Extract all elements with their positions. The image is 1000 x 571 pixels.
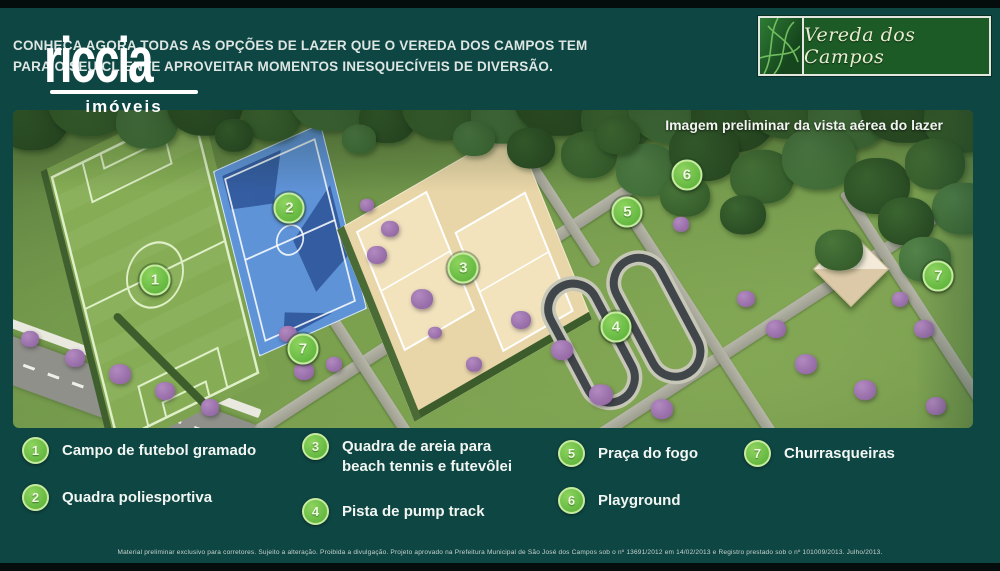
tree-canopy (932, 182, 973, 235)
aerial-view-image: Imagem preliminar da vista aérea do laze… (13, 110, 973, 428)
flowering-tree (589, 384, 613, 406)
tree-canopy (720, 195, 766, 234)
tree-canopy (342, 124, 376, 153)
brand-name: Vereda dos Campos (804, 18, 989, 74)
map-marker-3: 3 (448, 253, 479, 284)
legend-item: 7 Churrasqueiras (744, 440, 895, 467)
legend-column-2: 3 Quadra de areia para beach tennis e fu… (302, 433, 517, 525)
agency-logo-subtitle: imóveis (44, 97, 204, 117)
flowering-tree (673, 217, 689, 231)
legend-number-badge: 5 (558, 440, 585, 467)
agency-logo-wordmark: riccia (44, 34, 166, 86)
legend-item: 1 Campo de futebol gramado (22, 437, 256, 464)
tree-canopy (453, 121, 495, 157)
tree-canopy (815, 230, 863, 271)
legend-item: 6 Playground (558, 487, 698, 514)
flowering-tree (360, 199, 374, 212)
flowering-tree (914, 320, 934, 338)
legend-number-badge: 6 (558, 487, 585, 514)
development-brand-box: Vereda dos Campos (758, 16, 991, 76)
flowering-tree (367, 246, 387, 264)
legend-item: 3 Quadra de areia para beach tennis e fu… (302, 433, 517, 478)
legend-column-1: 1 Campo de futebol gramado 2 Quadra poli… (22, 437, 256, 511)
legend-item: 5 Praça do fogo (558, 440, 698, 467)
legal-disclaimer: Material preliminar exclusivo para corre… (0, 549, 1000, 556)
legend-item: 2 Quadra poliesportiva (22, 484, 256, 511)
flowering-tree (651, 399, 673, 419)
map-marker-5: 5 (612, 197, 643, 228)
legend-label: Quadra de areia para beach tennis e fute… (342, 433, 517, 478)
flowering-tree (551, 340, 573, 360)
flowering-tree (892, 292, 908, 306)
flowering-tree (466, 357, 482, 371)
legend-number-badge: 2 (22, 484, 49, 511)
map-marker-4: 4 (600, 311, 631, 342)
promo-page: CONHEÇA AGORA TODAS AS OPÇÕES DE LAZER Q… (0, 0, 1000, 571)
flowering-tree (201, 399, 219, 415)
map-marker-7: 7 (923, 260, 954, 291)
map-marker-2: 2 (274, 192, 305, 223)
flowering-tree (21, 331, 39, 347)
legend-number-badge: 1 (22, 437, 49, 464)
flowering-tree (795, 354, 817, 374)
flowering-tree (155, 382, 175, 400)
legend-number-badge: 3 (302, 433, 329, 460)
legend-number-badge: 4 (302, 498, 329, 525)
legend-label: Praça do fogo (598, 440, 698, 464)
flowering-tree (381, 221, 399, 237)
legend-label: Churrasqueiras (784, 440, 895, 464)
aerial-caption: Imagem preliminar da vista aérea do laze… (665, 117, 943, 133)
flowering-tree (511, 311, 531, 329)
map-marker-6: 6 (671, 159, 702, 190)
legend-column-4: 7 Churrasqueiras (744, 440, 895, 467)
flowering-tree (428, 326, 442, 339)
flowering-tree (109, 364, 131, 384)
tree-canopy (215, 119, 253, 151)
legend-column-3: 5 Praça do fogo 6 Playground (558, 440, 698, 514)
bottom-black-bar (0, 563, 1000, 571)
map-marker-7: 7 (287, 334, 318, 365)
legend-label: Playground (598, 487, 681, 511)
legend-label: Quadra poliesportiva (62, 484, 212, 508)
legend: 1 Campo de futebol gramado 2 Quadra poli… (0, 430, 1000, 535)
tree-canopy (507, 128, 555, 169)
tree-canopy (596, 117, 640, 154)
flowering-tree (326, 357, 342, 371)
top-black-bar (0, 0, 1000, 8)
legend-item: 4 Pista de pump track (302, 498, 517, 525)
legend-label: Campo de futebol gramado (62, 437, 256, 461)
legend-label: Pista de pump track (342, 498, 485, 522)
flowering-tree (926, 397, 946, 415)
flowering-tree (766, 320, 786, 338)
flowering-tree (411, 289, 433, 309)
flowering-tree (65, 349, 85, 367)
leaf-art-icon (760, 18, 804, 74)
flowering-tree (737, 291, 755, 307)
legend-number-badge: 7 (744, 440, 771, 467)
map-marker-1: 1 (140, 265, 171, 296)
agency-logo: riccia imóveis (44, 34, 214, 117)
flowering-tree (854, 380, 876, 400)
